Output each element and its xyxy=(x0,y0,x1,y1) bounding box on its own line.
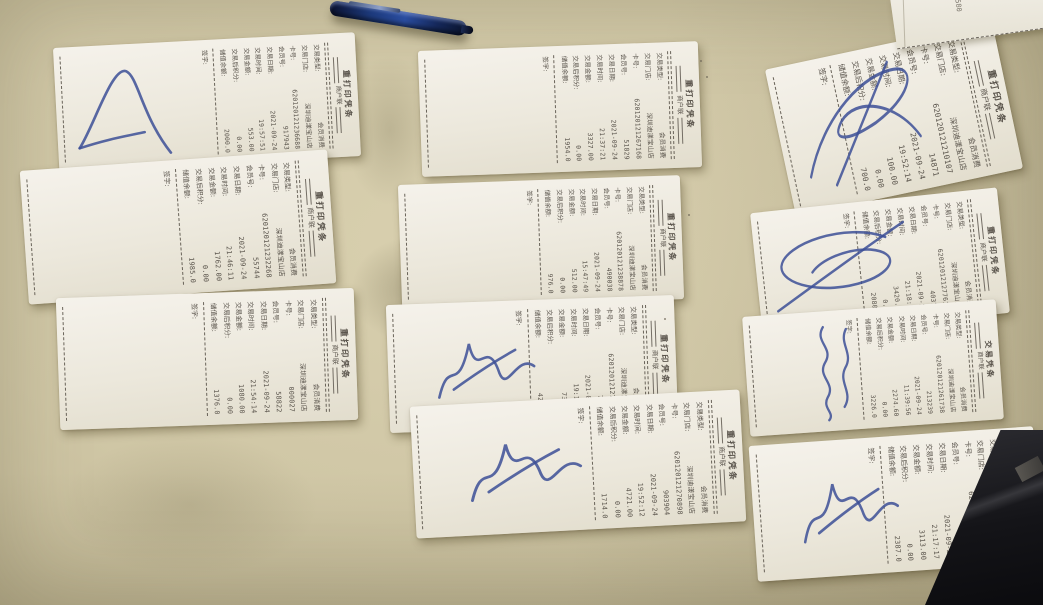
field-label: 交易时间: xyxy=(576,188,589,216)
field-label: 储值余额: xyxy=(557,56,570,84)
field-value: 903904 xyxy=(659,490,673,516)
field-label: 会员号: xyxy=(947,441,961,465)
field-label: 卡号: xyxy=(286,45,298,60)
field-value: 2021-09-24 xyxy=(259,370,273,413)
field-value: 2021-09-24 xyxy=(590,252,603,292)
field-label: 交易类型: xyxy=(627,306,640,335)
field-value: 会员消费 xyxy=(309,383,322,411)
divider-line xyxy=(333,57,339,83)
signature-line: 签字: xyxy=(29,168,183,296)
field-value: 深圳迪漾宝山店 xyxy=(625,245,638,291)
field-value: 1080.00 xyxy=(234,384,247,414)
divider-line xyxy=(717,417,723,443)
receipt-fields: 交易类型:会员消费交易门店:深圳迪漾宝山店卡号:620120121238878会… xyxy=(540,184,651,296)
field-label: 会员号: xyxy=(917,314,930,335)
field-label: 交易时间: xyxy=(630,405,644,435)
field-label: 交易时间: xyxy=(217,166,232,196)
receipt-paper: 重打印凭条 商户联 交易类型:会员消费交易门店:深圳迪漾宝山店卡号:620120… xyxy=(418,41,702,177)
field-label: 卡号: xyxy=(667,403,680,419)
signature-line: 签字: xyxy=(65,301,207,422)
field-label: 交易时间: xyxy=(592,54,605,82)
field-value: 2021-09-24 xyxy=(266,110,280,151)
field-value: 深圳迪漾宝山店 xyxy=(642,112,655,159)
field-label: 交易门店: xyxy=(623,187,636,215)
field-label: 卡号: xyxy=(254,164,268,181)
field-value: 深圳迪漾宝山店 xyxy=(301,103,315,149)
receipt-content: 重打印凭条 商户联 交易类型:会员消费交易门店:深圳迪漾宝山店卡号:620120… xyxy=(401,179,681,305)
field-label: 交易类型: xyxy=(951,312,964,339)
divider-line xyxy=(657,199,663,225)
field-label: 交易日期: xyxy=(642,404,656,434)
divider-line xyxy=(719,469,725,495)
field-label: 交易门店: xyxy=(680,402,694,432)
ink-speck xyxy=(688,214,690,216)
divider-line xyxy=(978,373,985,399)
receipt: 重打印凭条 商户联 交易类型:会员消费交易门店:深圳迪漾宝山店卡号:620120… xyxy=(410,389,746,538)
field-value: 会员消费 xyxy=(655,132,668,159)
field-label: 交易后积分: xyxy=(219,302,233,338)
field-value: 3327.00 xyxy=(583,132,596,161)
field-label: 储值余额: xyxy=(207,303,220,333)
field-label: 交易日期: xyxy=(579,308,592,337)
field-value: 21:46:11 xyxy=(222,246,237,281)
field-label: 交易类型: xyxy=(306,299,319,329)
ink-speck xyxy=(664,318,666,320)
field-label: 卡号: xyxy=(603,307,616,323)
field-value: 2021-09-24 xyxy=(607,119,620,160)
divider-line xyxy=(974,60,984,86)
field-value: 1954.0 xyxy=(560,137,573,162)
field-label: 交易日期: xyxy=(229,165,244,195)
divider-line xyxy=(651,321,657,347)
receipt: 重打印凭条 商户联 交易类型:会员消费交易门店:深圳迪漾宝山店卡号:620120… xyxy=(765,22,1023,217)
field-label: 交易日期: xyxy=(604,54,617,82)
receipt-copy-label: 商户联 xyxy=(304,207,315,228)
field-value: 19:52:12 xyxy=(634,482,648,517)
field-value: 1985.0 xyxy=(185,257,199,284)
signature-line: 签字: xyxy=(407,188,540,300)
field-label: 交易门店: xyxy=(972,440,987,471)
field-label: 交易后积分: xyxy=(191,168,206,205)
field-value: 21:54:14 xyxy=(247,379,261,413)
handwritten-signature xyxy=(748,312,918,429)
field-value: 55744 xyxy=(248,257,262,279)
handwritten-signature xyxy=(755,441,945,573)
ink-speck xyxy=(700,412,702,414)
field-value: 620120121238878 xyxy=(612,231,626,291)
field-label: 交易门店: xyxy=(294,299,307,329)
divider-line xyxy=(675,66,681,92)
field-label: 会员号: xyxy=(599,188,611,209)
field-label: 交易类型: xyxy=(280,162,295,192)
field-value: 深圳迪漾宝山店 xyxy=(683,465,698,514)
divider-line xyxy=(976,214,984,240)
field-label: 交易日期: xyxy=(257,301,270,331)
signature-line: 签字: xyxy=(427,54,556,168)
receipt-paper: 交易凭条 商户联 交易类型:会员消费交易门店:深圳迪漾宝山店卡号:6201201… xyxy=(742,299,1004,436)
divider-line xyxy=(974,322,981,348)
paper-crease xyxy=(903,0,906,47)
field-value: 620120121267168 xyxy=(630,98,644,159)
field-label: 卡号: xyxy=(928,203,941,219)
ballpoint-pen xyxy=(329,0,468,36)
signature-label: 签字: xyxy=(541,56,550,71)
cast-shadow xyxy=(20,410,360,600)
field-label: 交易后积分: xyxy=(552,189,565,223)
receipt: 交易凭条 商户联 交易类型:会员消费交易门店:深圳迪漾宝山店卡号:6201201… xyxy=(742,299,1004,436)
field-label: 交易类型: xyxy=(634,186,647,214)
field-label: 交易类型: xyxy=(309,44,322,72)
field-label: 交易日期: xyxy=(587,188,600,216)
receipt: 重打印凭条 商户联 交易类型:会员消费交易门店:深圳迪漾宝山店卡号:620120… xyxy=(20,149,337,304)
receipt-fields: 交易类型:会员消费交易门店:深圳迪漾宝山店卡号:620120121267168会… xyxy=(556,50,669,164)
field-value: 0.00 xyxy=(555,277,567,293)
field-label: 会员号: xyxy=(616,54,629,76)
pen-clip xyxy=(349,1,401,13)
divider-line xyxy=(985,113,995,139)
field-label: 会员号: xyxy=(269,300,282,323)
field-value: 213239 xyxy=(923,391,936,415)
field-value: 会员消费 xyxy=(286,248,301,277)
receipt-paper: 重打印凭条 商户联 交易类型:会员消费交易门店:深圳迪漾宝山店卡号:000027… xyxy=(56,288,358,430)
field-value: 976.0 xyxy=(544,274,556,294)
photo-of-receipts-on-table: 重打印凭条 商户联 交易类型:会员消费交易门店:深圳迪漾宝山店卡号:620120… xyxy=(0,0,1043,605)
ink-speck xyxy=(706,76,708,78)
receipt-copy-label: 商户联 xyxy=(716,446,726,467)
receipt-paper: 重打印凭条 商户联 交易类型:会员消费交易门店:深圳迪漾宝山店卡号:620120… xyxy=(20,149,337,304)
receipt-content: 重打印凭条 商户联 交易类型:会员消费交易门店:深圳迪漾宝山店卡号:620120… xyxy=(23,154,333,301)
receipt-copy-label: 商户联 xyxy=(656,228,666,247)
field-value: 2021-09-24 xyxy=(646,473,661,516)
field-value: 会员消费 xyxy=(313,122,326,149)
field-value: 000027 xyxy=(284,386,297,412)
partial-receipt-number: 1580 xyxy=(953,0,963,12)
field-label: 卡号: xyxy=(281,300,294,316)
receipt: 重打印凭条 商户联 交易类型:会员消费交易门店:深圳迪漾宝山店卡号:620120… xyxy=(418,41,702,177)
field-value: 1376.0 xyxy=(210,389,223,415)
handwritten-signature xyxy=(417,403,634,530)
divider-line xyxy=(305,178,312,204)
field-value: 会员消费 xyxy=(697,485,711,513)
field-label: 会员号: xyxy=(655,403,669,426)
field-label: 储值余额: xyxy=(541,190,554,218)
ink-speck xyxy=(700,60,702,62)
field-label: 交易门店: xyxy=(298,45,311,73)
field-value: 1762.00 xyxy=(210,251,225,282)
receipt-paper: 重打印凭条 商户联 交易类型:会员消费交易门店:深圳迪漾宝山店卡号:620120… xyxy=(398,175,684,309)
field-label: 交易门店: xyxy=(640,53,653,81)
field-label: 交易门店: xyxy=(940,312,953,339)
receipt-copy-label: 商户联 xyxy=(674,95,684,115)
field-label: 卡号: xyxy=(929,313,941,328)
signature-label: 签字: xyxy=(190,303,199,319)
receipt: 重打印凭条 商户联 交易类型:会员消费交易门店:深圳迪漾宝山店卡号:620120… xyxy=(398,175,684,309)
receipt-fields: 交易类型:会员消费交易门店:深圳迪漾宝山店卡号:620120121232268会… xyxy=(178,160,302,286)
receipt-content: 重打印凭条 商户联 交易类型:会员消费交易门店:深圳迪漾宝山店卡号:000027… xyxy=(59,292,355,426)
field-label: 卡号: xyxy=(960,440,974,457)
receipt-fields: 交易类型:会员消费交易门店:深圳迪漾宝山店卡号:000027会员号:58822交… xyxy=(206,297,324,417)
field-value: 会员消费 xyxy=(957,386,970,412)
field-label: 交易金额: xyxy=(204,167,219,197)
field-label: 会员号: xyxy=(591,307,604,329)
signature-label: 签字: xyxy=(162,170,171,186)
divider-line xyxy=(677,117,683,143)
field-label: 交易时间: xyxy=(244,301,257,331)
field-value: 21:37:21 xyxy=(595,128,608,161)
field-value: 0.00 xyxy=(222,397,235,414)
field-value: 深圳迪漾宝山店 xyxy=(296,363,310,412)
divider-line xyxy=(332,368,338,394)
receipt: 重打印凭条 商户联 交易类型:会员消费交易门店:深圳迪漾宝山店卡号:000027… xyxy=(56,288,358,430)
field-value: 917943 xyxy=(278,126,291,151)
divider-line xyxy=(331,315,337,341)
field-label: 交易类型: xyxy=(652,52,665,80)
divider-line xyxy=(659,250,665,276)
divider-line xyxy=(335,108,341,134)
field-label: 会员号: xyxy=(274,46,287,68)
receipt-content: 重打印凭条 商户联 交易类型:会员消费交易门店:深圳迪漾宝山店卡号:620120… xyxy=(421,45,699,172)
field-label: 卡号: xyxy=(611,187,623,202)
field-value: 490038 xyxy=(602,267,615,291)
pen-tip xyxy=(461,25,474,35)
field-value: 15:47:49 xyxy=(578,260,591,292)
signature-label: 签字: xyxy=(525,190,533,205)
field-value: 0.00 xyxy=(572,145,584,162)
receipt-paper: 重打印凭条 商户联 交易类型:会员消费交易门店:深圳迪漾宝山店卡号:620120… xyxy=(765,22,1023,217)
field-label: 卡号: xyxy=(628,53,640,68)
receipt-copy-label: 商户联 xyxy=(975,351,985,370)
field-label: 交易门店: xyxy=(615,307,628,336)
field-label: 交易后积分: xyxy=(569,55,582,90)
field-label: 交易门店: xyxy=(267,163,282,193)
field-value: 0.00 xyxy=(198,265,212,283)
field-value: 51829 xyxy=(619,139,632,160)
receipt-copy-label: 商户联 xyxy=(650,350,660,370)
field-label: 交易金额: xyxy=(581,55,594,83)
field-label: 储值余额: xyxy=(179,169,194,199)
receipt-paper: 重打印凭条 商户联 交易类型:会员消费交易门店:深圳迪漾宝山店卡号:620120… xyxy=(410,389,746,538)
divider-line xyxy=(308,231,315,257)
field-label: 交易金额: xyxy=(232,302,245,332)
receipt-copy-label: 商户联 xyxy=(332,85,342,104)
handwritten-signature xyxy=(59,45,258,164)
field-value: 58822 xyxy=(272,391,285,413)
field-value: 会员消费 xyxy=(637,264,650,290)
field-label: 交易类型: xyxy=(692,401,706,431)
receipt-copy-label: 商户联 xyxy=(977,242,988,262)
field-label: 交易日期: xyxy=(263,46,276,74)
field-value: 512.00 xyxy=(567,269,580,293)
field-label: 交易金额: xyxy=(564,189,577,217)
divider-line xyxy=(981,265,989,291)
field-label: 会员号: xyxy=(916,205,930,228)
field-label: 会员号: xyxy=(242,165,256,189)
receipt-copy-label: 商户联 xyxy=(329,344,339,364)
